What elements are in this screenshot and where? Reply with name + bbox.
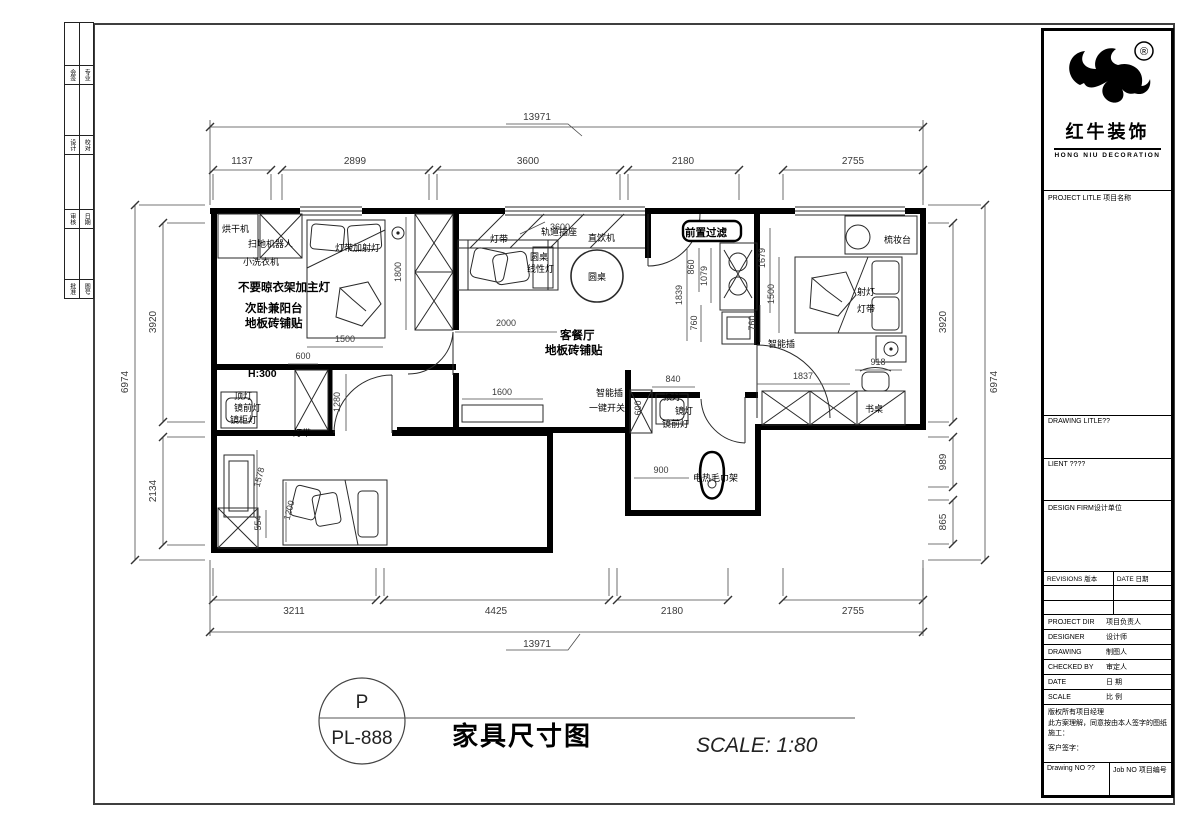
dim-b3-1200: 1200 [282,499,297,521]
bedroom3-door [334,375,392,433]
dim-top-1: 1137 [231,156,253,167]
label-mirror-cab: 镜柜灯 [230,414,257,425]
label-spot: 射灯 [857,286,875,297]
dim-right-3: 865 [938,513,949,530]
dim-top-5: 2755 [842,156,865,167]
dim-top-2: 2899 [344,156,367,167]
label-onekey: 一键开关 [589,402,625,413]
tv-cabinet [462,405,543,422]
floor-plan-drawing: 13971 1137 2899 3600 2180 2755 3211 4425… [0,0,1200,824]
dim-b3-554: 554 [253,515,263,530]
dim-bed1-off: 600 [295,351,310,361]
label-mirror-b: 镜灯 [675,405,693,416]
label-prefilter: 前置过滤 [685,226,727,239]
label-smart-a: 智能插 [768,338,795,349]
label-towel: 电热毛巾架 [693,472,738,483]
label-strip-c: 灯带 [293,428,311,438]
dim-right-total: 6974 [989,370,1000,393]
label-strip-b: 灯带 [857,304,875,314]
dim-bath2-840: 840 [665,374,680,384]
bubble-bottom-label: PL-888 [331,728,392,749]
dim-left-2: 2134 [148,479,159,502]
label-robot: 扫地机器人 [248,238,293,249]
dim-top-4: 2180 [672,156,695,167]
dim-hall-760a: 760 [689,315,699,330]
dim-h300: H:300 [248,368,277,380]
dim-ticks-left [131,201,167,564]
dryer-box [218,214,258,258]
label-living-2: 地板砖铺贴 [545,343,603,357]
label-no-rack: 不要晾衣架加主灯 [238,280,330,294]
master-door [757,345,830,418]
dim-mbr-918: 918 [870,357,885,367]
vanity-stool [846,225,870,249]
dim-right-2: 989 [938,453,949,470]
dim-ward1-h: 1800 [393,262,403,282]
label-bedroom2-1: 次卧兼阳台 [245,301,303,315]
dim-ticks-right [949,201,989,564]
label-mirror-front-b: 镜前灯 [662,418,689,429]
dim-sofa-w: 2000 [496,318,516,328]
label-ceil-b: 顶灯 [663,392,681,402]
desk-chair [862,372,889,391]
label-dryer: 烘干机 [222,223,249,234]
dim-left-total: 6974 [120,370,131,393]
label-smart-b: 智能插 [596,387,623,398]
label-desk: 书桌 [865,403,883,414]
dim-bottom-2: 4425 [485,606,508,617]
dim-bottom-total: 13971 [523,639,551,650]
label-vanity: 梳妆台 [884,234,911,245]
bedroom3-furniture [218,455,387,548]
dim-right-1: 3920 [938,310,949,333]
label-mirror-front-a: 镜前灯 [234,402,261,413]
bubble-top-label: P [356,692,369,713]
walls [210,206,926,553]
dim-bottom-3: 2180 [661,606,684,617]
bath2-door [701,397,745,443]
dim-cab-600: 600 [633,400,643,415]
label-washer: 小洗衣机 [243,256,279,267]
plan-labels: 烘干机 扫地机器人 小洗衣机 灯带加射灯 不要晾衣架加主灯 次卧兼阳台 地板砖铺… [222,223,911,483]
label-table-s: 圆桌 [530,251,548,262]
dim-left-1: 3920 [148,310,159,333]
dim-mbr-1837: 1837 [793,371,813,381]
label-bedroom2-2: 地板砖铺贴 [245,316,303,330]
stove-burner [729,253,747,271]
dimensions: 13971 1137 2899 3600 2180 2755 3211 4425… [120,112,1000,650]
dim-hall-1679: 1679 [757,248,767,268]
dim-top-total: 13971 [523,112,551,123]
interior-dimensions: 1500 600 1800 H:300 2000 3600 1600 860 1… [248,217,902,542]
cad-sheet: { "sheet": {"bg": "#ffffff", "line_color… [0,0,1200,824]
label-living-1: 客餐厅 [559,328,595,342]
label-track-socket: 轨道插座 [541,226,577,237]
dim-hall-1500: 1500 [766,284,776,304]
sheet-scale: SCALE: 1:80 [696,734,818,757]
drawing-footer: P PL-888 家具尺寸图 SCALE: 1:80 [319,678,855,764]
dim-hall-1839: 1839 [674,285,684,305]
label-water: 直饮机 [588,232,615,243]
bed3 [283,480,387,545]
dim-bottom-1: 3211 [283,606,305,617]
label-linear: 线性灯 [527,263,554,274]
dim-bed1-w: 1500 [335,334,355,344]
stove-burner [729,277,747,295]
dim-tv: 1600 [492,387,512,397]
dim-hall-1079: 1079 [699,266,709,286]
dim-top-3: 3600 [517,156,540,167]
label-table-round: 圆桌 [588,271,606,282]
dim-bottom-4: 2755 [842,606,865,617]
label-strip-a: 灯带 [490,234,508,244]
label-strip-spot: 灯带加射灯 [335,242,380,253]
dim-bath2-900: 900 [653,465,668,475]
dim-hall-860: 860 [686,259,696,274]
sheet-title: 家具尺寸图 [452,721,592,751]
dim-hall-760b: 760 [747,315,757,330]
master-furniture [762,216,917,425]
dim-b3-1280: 1280 [332,392,342,412]
label-ceil-a: 顶灯 [234,391,252,401]
drawing-number-bubble [319,678,405,764]
